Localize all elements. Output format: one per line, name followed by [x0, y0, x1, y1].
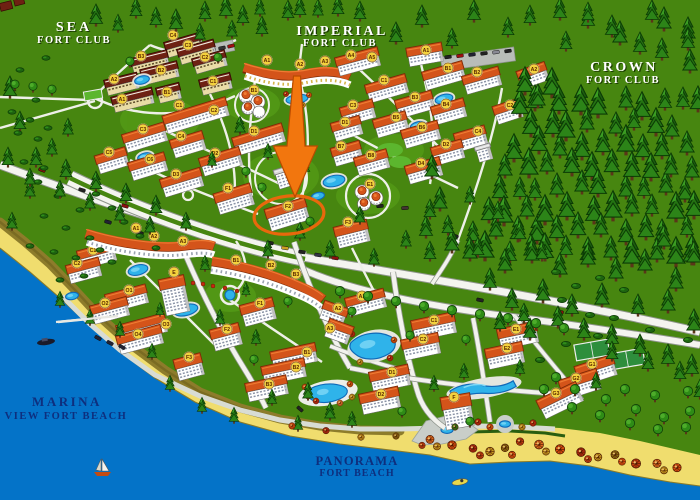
- svg-text:E2: E2: [504, 346, 510, 352]
- svg-text:F: F: [452, 395, 455, 401]
- svg-text:MARINA: MARINA: [32, 394, 102, 409]
- svg-text:B3: B3: [138, 54, 145, 60]
- svg-text:O4: O4: [135, 332, 142, 338]
- svg-text:IMPERIAL: IMPERIAL: [296, 24, 388, 39]
- svg-text:A5: A5: [369, 55, 376, 61]
- svg-text:A1: A1: [264, 58, 271, 64]
- svg-text:B2: B2: [158, 68, 165, 74]
- svg-text:FORT BEACH: FORT BEACH: [319, 468, 394, 479]
- svg-text:B4: B4: [443, 102, 450, 108]
- svg-text:C6: C6: [147, 157, 154, 163]
- svg-text:CROWN: CROWN: [590, 60, 658, 75]
- svg-text:A3: A3: [322, 59, 329, 65]
- svg-text:A2: A2: [531, 67, 538, 73]
- svg-text:C3: C3: [140, 127, 147, 133]
- svg-text:A1: A1: [119, 97, 126, 103]
- svg-text:O1: O1: [126, 288, 133, 294]
- svg-text:SEA: SEA: [56, 20, 92, 35]
- svg-text:B2: B2: [293, 365, 300, 371]
- svg-text:VIEW FORT BEACH: VIEW FORT BEACH: [5, 411, 128, 422]
- svg-text:B1: B1: [251, 88, 258, 94]
- svg-text:B1: B1: [164, 90, 171, 96]
- svg-text:A2: A2: [111, 77, 118, 83]
- svg-text:F2: F2: [285, 204, 291, 210]
- svg-text:A2: A2: [335, 306, 342, 312]
- svg-text:B3: B3: [266, 382, 273, 388]
- svg-text:C1: C1: [210, 79, 217, 85]
- svg-text:C2: C2: [74, 261, 81, 267]
- svg-text:C4: C4: [170, 33, 177, 39]
- svg-text:C4: C4: [475, 129, 482, 135]
- svg-text:D1: D1: [389, 370, 396, 376]
- svg-text:B6: B6: [419, 125, 426, 131]
- svg-text:A3: A3: [180, 239, 187, 245]
- svg-text:A3: A3: [327, 326, 334, 332]
- svg-text:E: E: [172, 270, 176, 276]
- svg-text:F2: F2: [224, 327, 230, 333]
- svg-text:FORT CLUB: FORT CLUB: [37, 35, 111, 46]
- svg-text:PANORAMA: PANORAMA: [316, 454, 399, 468]
- svg-text:B7: B7: [338, 144, 345, 150]
- svg-text:B5: B5: [393, 115, 400, 121]
- svg-text:A2: A2: [151, 234, 158, 240]
- svg-text:C3: C3: [350, 103, 357, 109]
- svg-text:FORT CLUB: FORT CLUB: [586, 75, 660, 86]
- svg-text:B1: B1: [304, 350, 311, 356]
- svg-text:B2: B2: [268, 263, 275, 269]
- svg-text:A1: A1: [133, 226, 140, 232]
- svg-text:D1: D1: [251, 129, 258, 135]
- svg-text:F3: F3: [186, 355, 192, 361]
- svg-text:G3: G3: [553, 391, 560, 397]
- svg-text:C3: C3: [185, 43, 192, 49]
- svg-text:D1: D1: [342, 120, 349, 126]
- svg-text:E1: E1: [513, 327, 519, 333]
- svg-text:D3: D3: [173, 172, 180, 178]
- svg-text:D2: D2: [443, 142, 450, 148]
- svg-text:A2: A2: [297, 62, 304, 68]
- svg-text:B1: B1: [233, 258, 240, 264]
- svg-text:O3: O3: [163, 322, 170, 328]
- svg-text:B2: B2: [474, 70, 481, 76]
- svg-text:C1: C1: [381, 78, 388, 84]
- svg-text:D2: D2: [378, 392, 385, 398]
- svg-text:C1: C1: [176, 103, 183, 109]
- svg-text:G2: G2: [573, 376, 580, 382]
- svg-text:A4: A4: [348, 53, 355, 59]
- svg-text:C4: C4: [178, 134, 185, 140]
- svg-text:C2: C2: [420, 337, 427, 343]
- svg-text:A1: A1: [423, 48, 430, 54]
- svg-text:C1: C1: [431, 318, 438, 324]
- svg-text:B8: B8: [368, 153, 375, 159]
- svg-text:C2: C2: [202, 55, 209, 61]
- svg-text:F1: F1: [257, 301, 263, 307]
- svg-text:C1: C1: [90, 248, 97, 254]
- svg-text:F1: F1: [225, 186, 231, 192]
- svg-text:D4: D4: [418, 161, 425, 167]
- svg-text:C5: C5: [106, 150, 113, 156]
- svg-text:O2: O2: [102, 301, 109, 307]
- svg-text:F3: F3: [345, 220, 351, 226]
- svg-text:G1: G1: [589, 362, 596, 368]
- svg-text:B3: B3: [293, 272, 300, 278]
- svg-text:B1: B1: [445, 66, 452, 72]
- svg-text:E1: E1: [367, 182, 373, 188]
- svg-text:B3: B3: [412, 95, 419, 101]
- svg-text:C2: C2: [211, 108, 218, 114]
- svg-text:FORT CLUB: FORT CLUB: [303, 38, 377, 49]
